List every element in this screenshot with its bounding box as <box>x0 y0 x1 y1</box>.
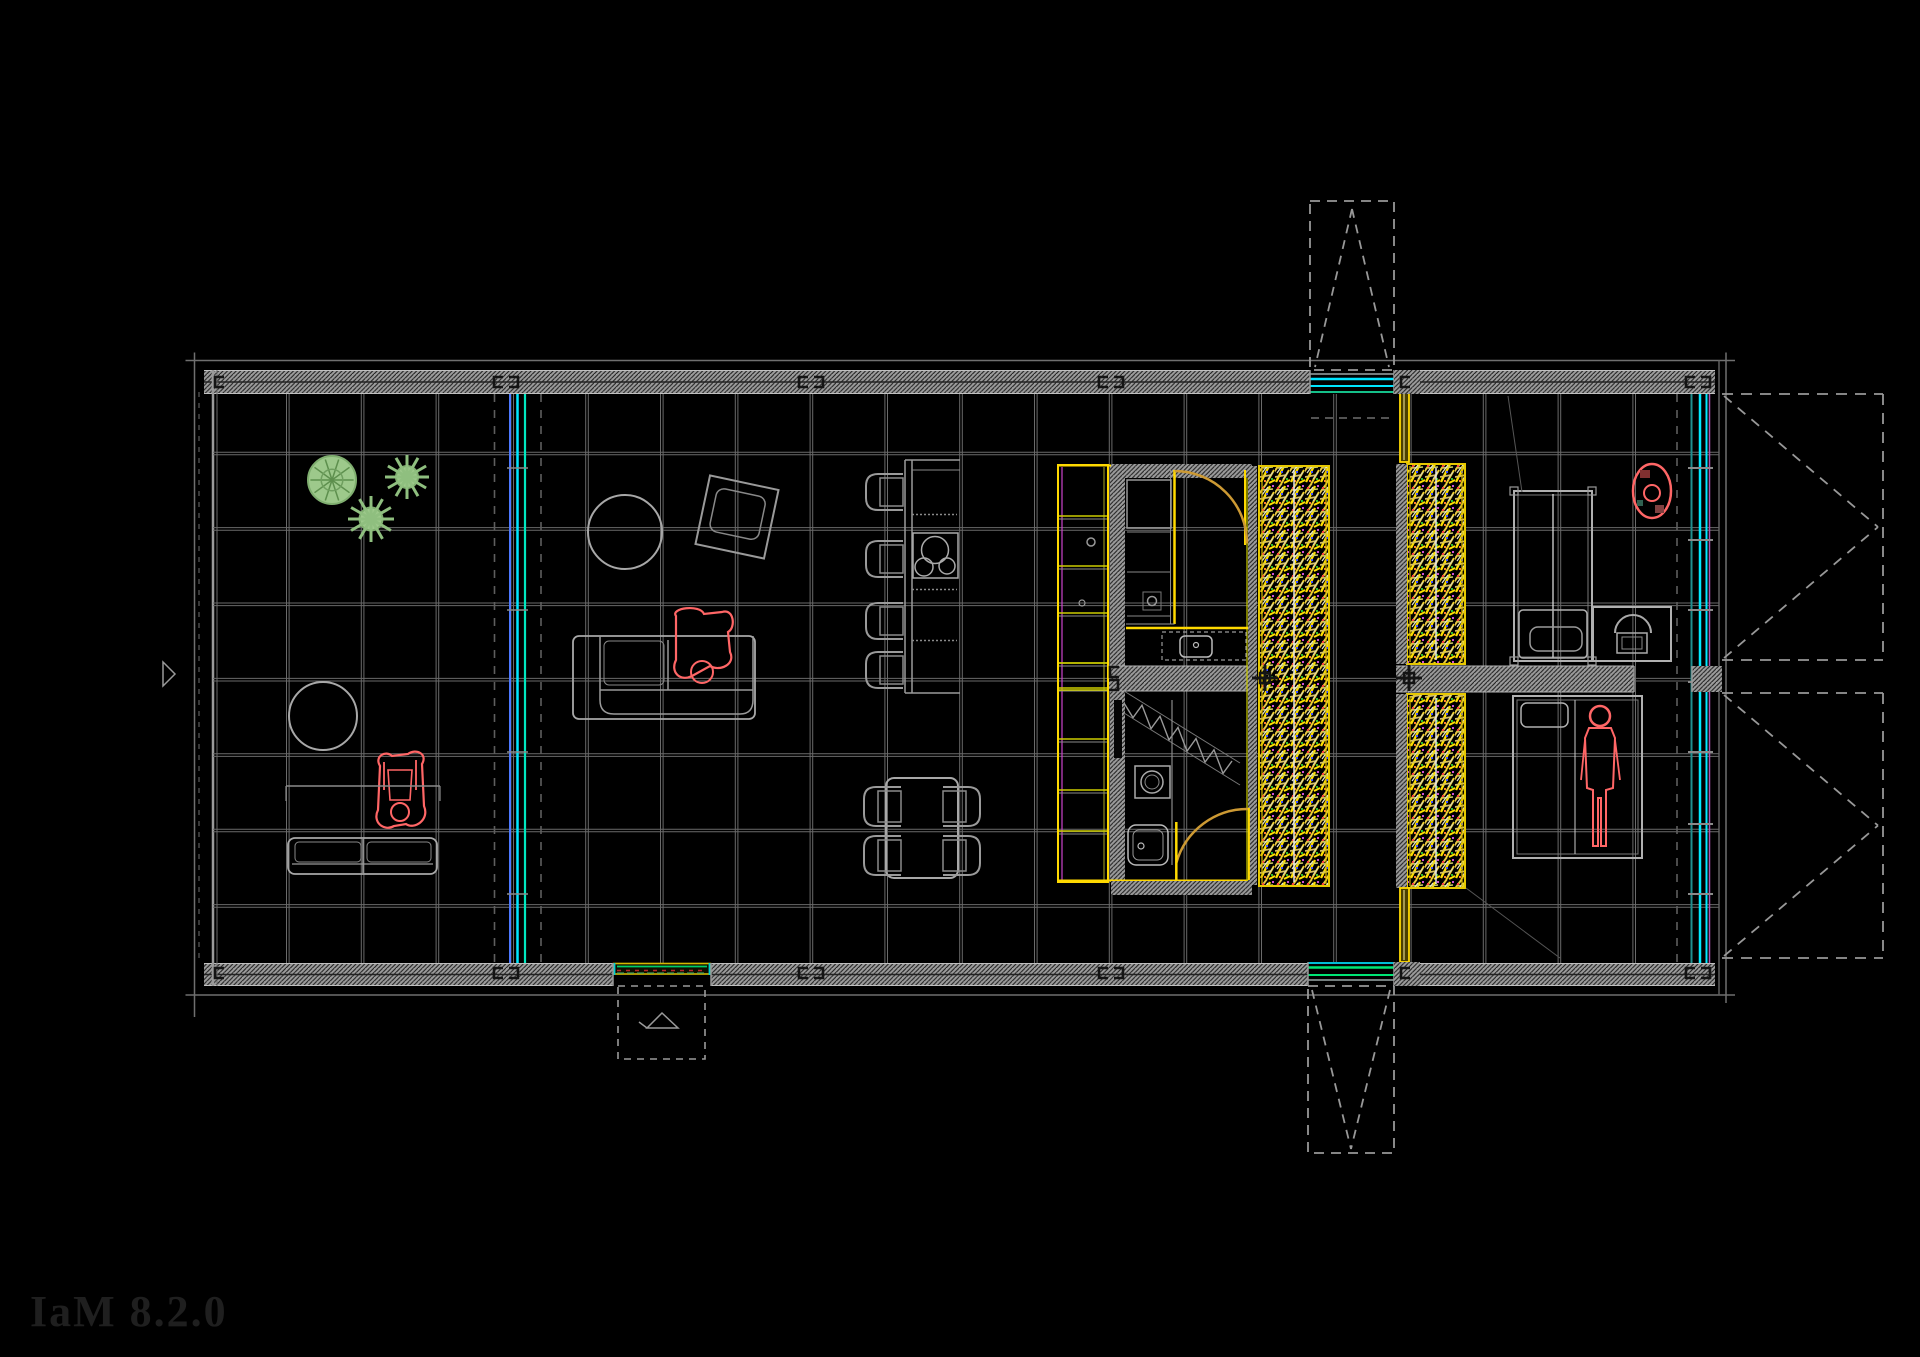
svg-text:IaM 8.2.0: IaM 8.2.0 <box>30 1287 228 1336</box>
